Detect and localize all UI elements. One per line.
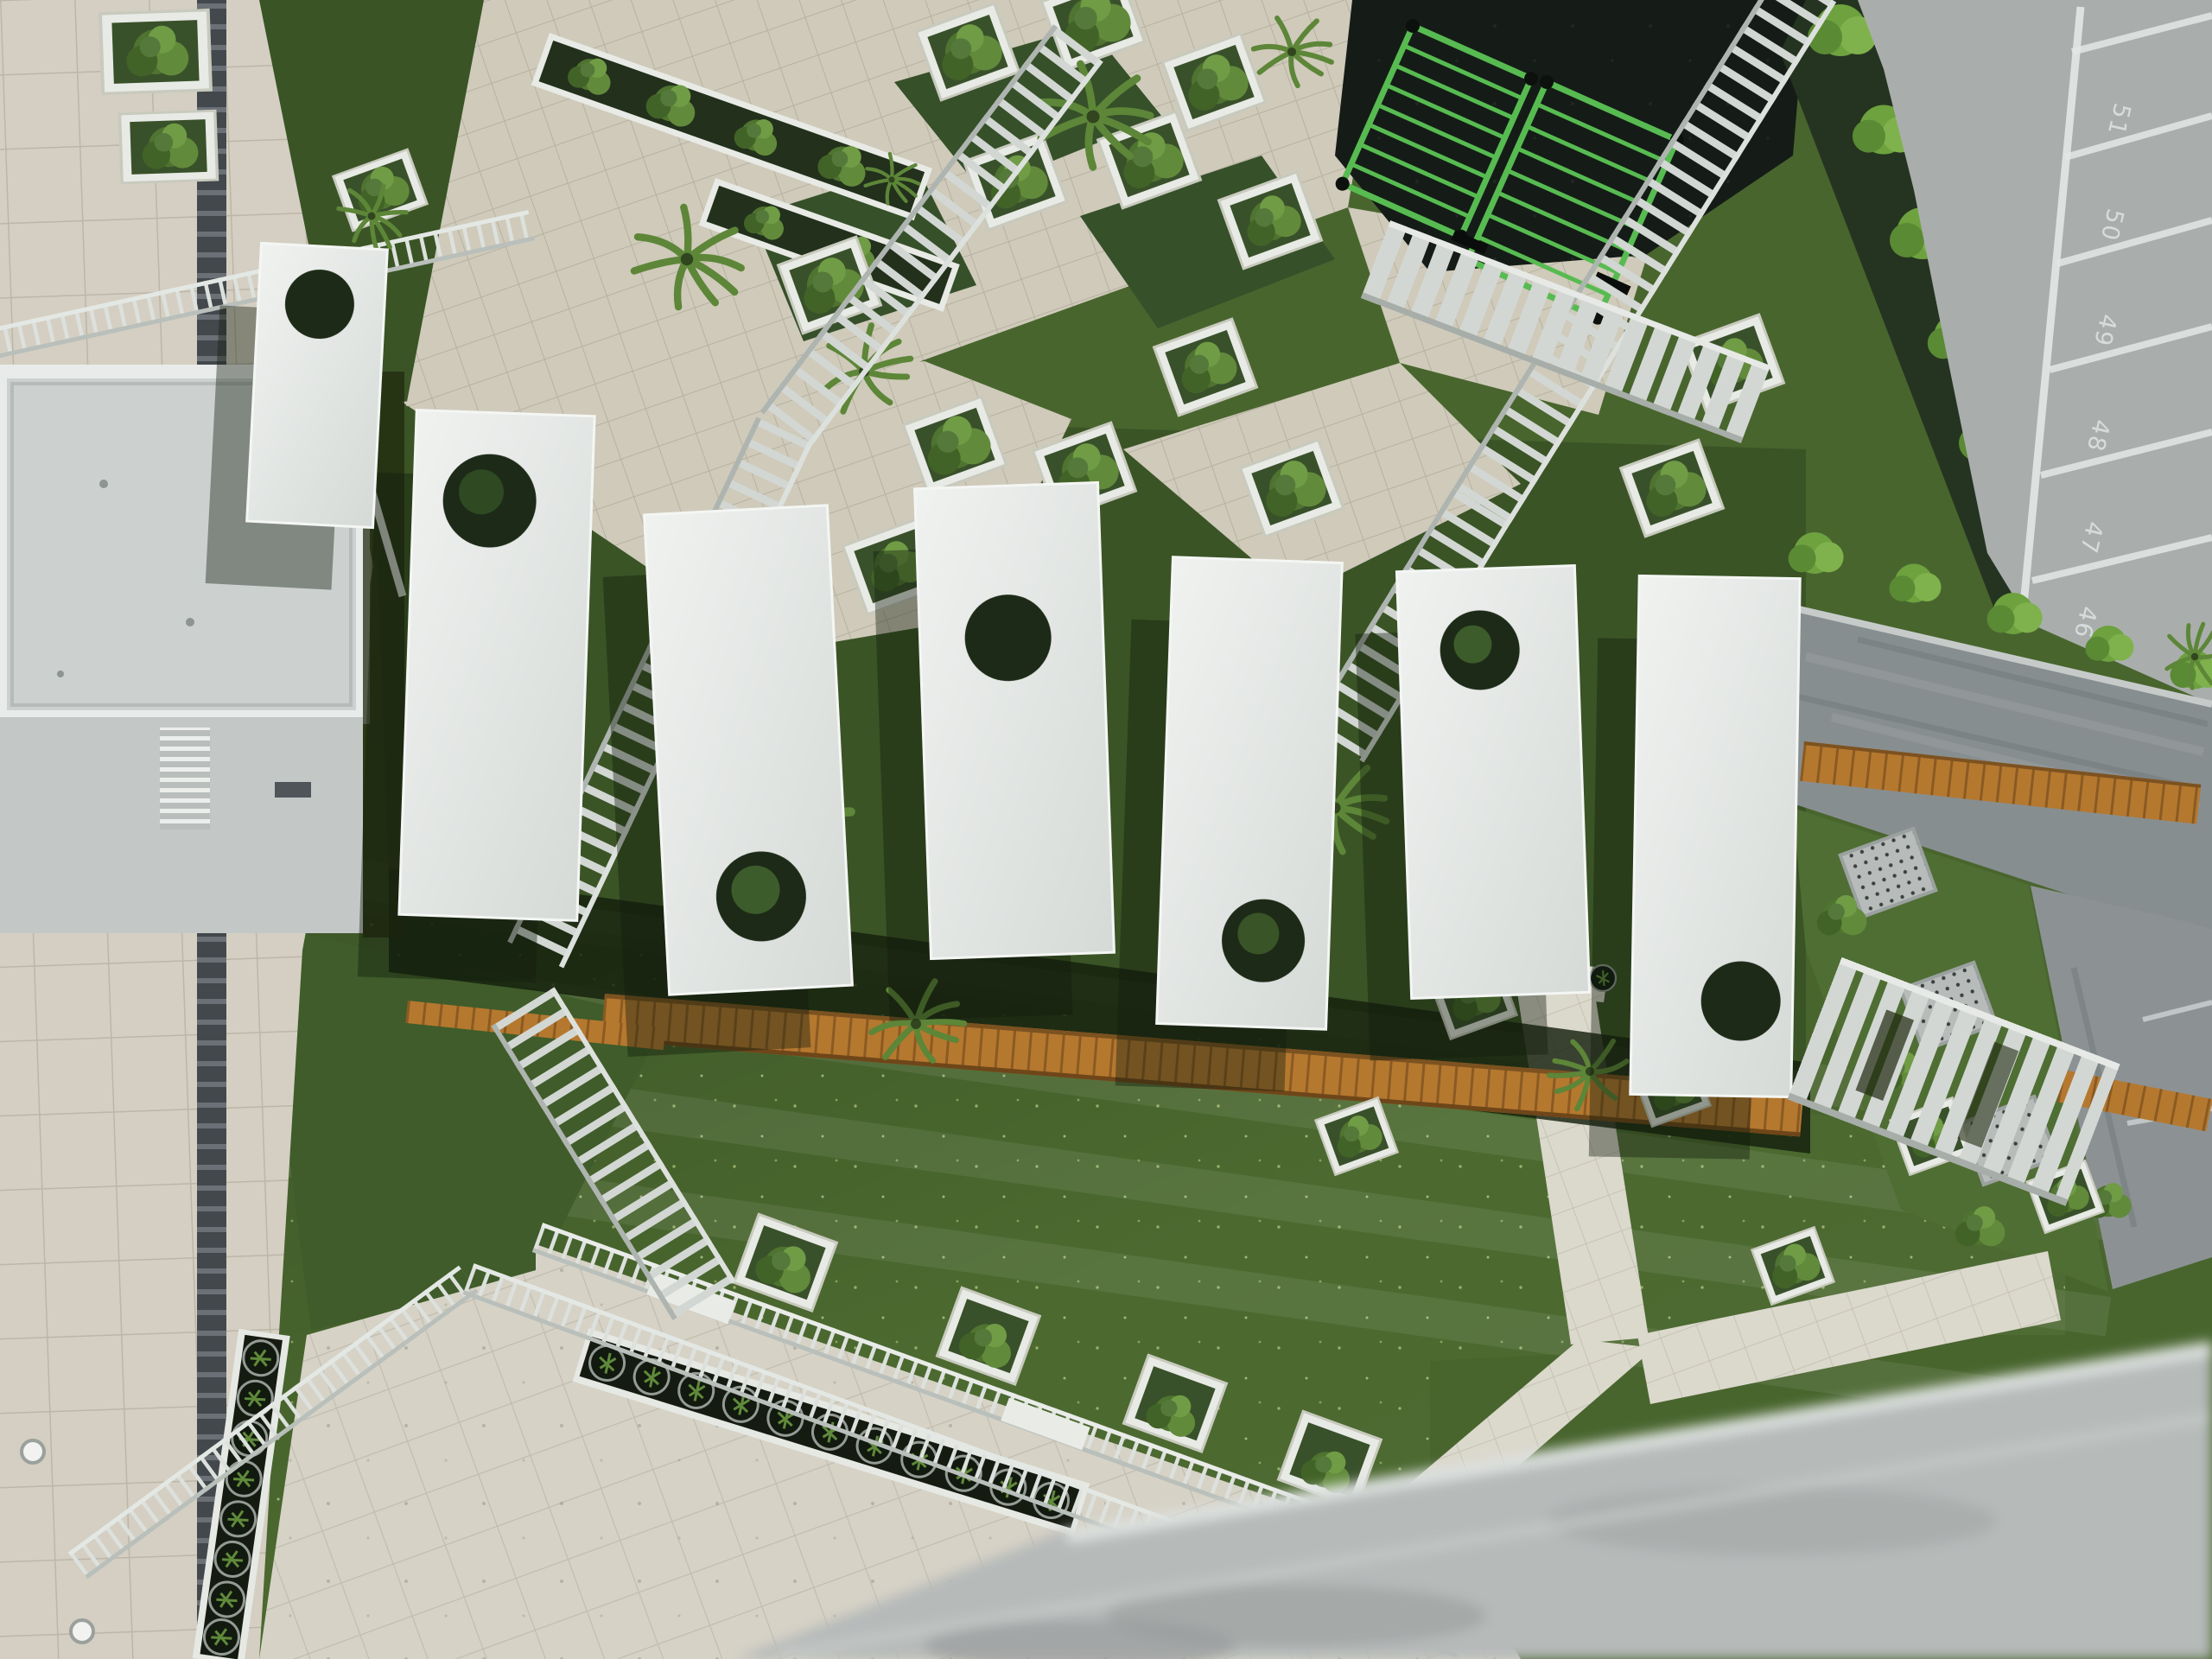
wall-louver-vent	[160, 728, 210, 829]
planter-box	[119, 111, 217, 183]
canopy-4	[915, 482, 1115, 958]
aerial-photo-rooftop-courtyard: 51 50 49 48 47 46	[0, 0, 2212, 1659]
canopy-5	[1157, 557, 1343, 1030]
wall-vent	[275, 782, 311, 798]
planter-box	[100, 10, 211, 94]
canopy-3	[645, 505, 853, 995]
canopy-6	[1396, 566, 1589, 999]
canopy-2	[399, 410, 594, 921]
walkway-light	[71, 1620, 93, 1643]
walkway-light	[22, 1440, 44, 1463]
canopy-7	[1630, 575, 1800, 1096]
photo-canvas: 51 50 49 48 47 46	[0, 0, 2212, 1659]
canopy-1	[247, 243, 388, 527]
